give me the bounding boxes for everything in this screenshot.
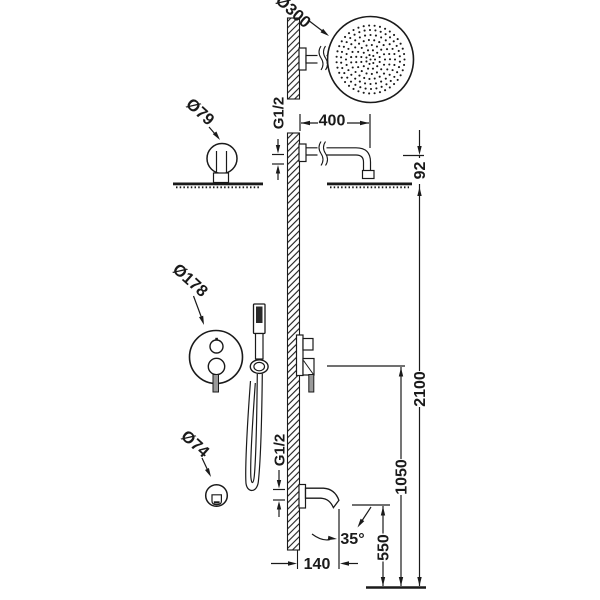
dim-label-spout-height: 550: [376, 534, 393, 561]
leader-arm-escutcheon: [209, 127, 220, 140]
dim-spout-thread: [273, 470, 285, 517]
hand-shower-handle: [256, 334, 264, 360]
spout-aerator-front: [214, 501, 220, 503]
dim-label-valve-height: 1050: [394, 459, 411, 495]
label-valve-plate-diameter: Ø178: [169, 260, 211, 300]
overhead-shower-side-view: [299, 142, 412, 188]
mixer-lever-front: [213, 375, 219, 393]
head-plate-side: [327, 183, 412, 186]
head-connector-side: [363, 171, 375, 179]
head-plate-front: [173, 183, 263, 186]
shower-system-drawing: Ø300 Ø79 Ø178 Ø74 G1/2 G1/2 400 92 2100 …: [0, 0, 600, 600]
arm-side-inner: [306, 155, 364, 171]
hand-shower-holder-hole: [254, 362, 265, 370]
dim-label-head-drop: 92: [412, 162, 429, 180]
mixer-lever-side: [309, 375, 314, 393]
leader-spout-escutcheon: [202, 458, 211, 477]
overhead-shower-plan-view: [299, 17, 414, 103]
drawing-canvas: Ø300 Ø79 Ø178 Ø74 G1/2 G1/2 400 92 2100 …: [0, 0, 600, 600]
dim-arm-thread: [272, 139, 284, 180]
cartridge-base: [208, 358, 224, 374]
hand-shower-spray-face: [256, 307, 263, 324]
diverter-knob-side: [303, 339, 313, 351]
arm-side-outer: [306, 148, 371, 171]
dimension-linework: [194, 20, 427, 588]
leader-head-diameter: [308, 20, 329, 36]
dim-label-spout-reach: 140: [304, 556, 331, 573]
spout-front-view: [206, 485, 228, 507]
dim-label-spout-angle: 35°: [340, 531, 364, 548]
label-arm-thread: G1/2: [270, 97, 287, 130]
dim-label-arm-length: 400: [319, 113, 346, 130]
label-arm-escutcheon-diameter: Ø79: [182, 95, 217, 129]
arm-flange-plan: [299, 48, 306, 70]
dim-head-drop-and-height: [403, 130, 424, 586]
spout-side-view: [299, 485, 339, 509]
label-spout-escutcheon-diameter: Ø74: [177, 427, 213, 462]
wall-sections: [288, 18, 300, 569]
dim-label-head-height: 2100: [412, 371, 429, 407]
hand-shower-hose: [251, 374, 258, 483]
spout-body-side: [306, 488, 339, 507]
arm-flange-side: [299, 144, 306, 162]
diverter-knob: [210, 340, 223, 353]
mixer-trim-side: [297, 335, 304, 376]
head-connector-front: [214, 173, 229, 183]
arm-escutcheon-front: [207, 144, 237, 174]
spout-flange-side: [299, 485, 306, 509]
overhead-shower-front-view: [173, 144, 263, 188]
hand-shower: [246, 304, 268, 490]
label-spout-thread: G1/2: [271, 434, 288, 467]
mixer-front-view: [190, 331, 243, 393]
wall-plan-view: [288, 18, 300, 99]
